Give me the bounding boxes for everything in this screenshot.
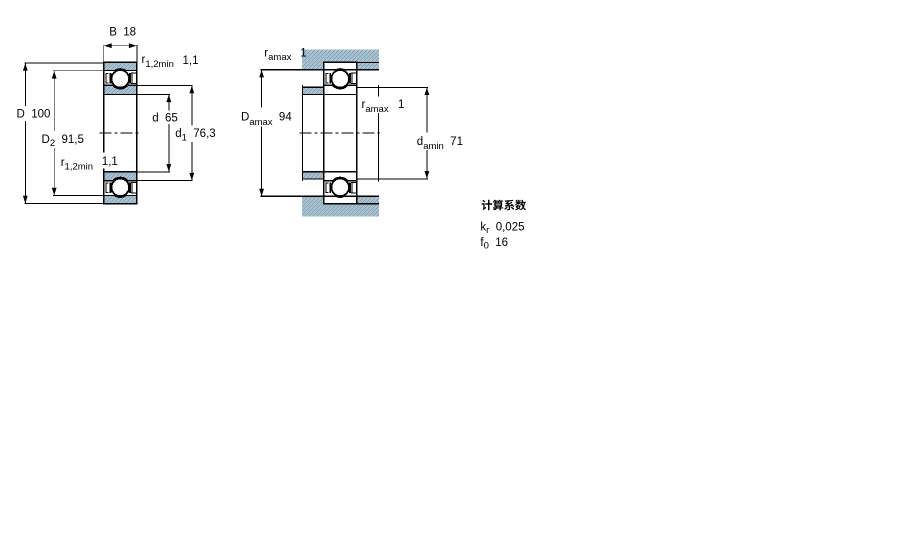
svg-text:1,1: 1,1 xyxy=(183,55,199,67)
svg-text:f0 16: f0 16 xyxy=(480,237,508,251)
svg-text:r1,2min: r1,2min xyxy=(142,54,174,70)
svg-text:kr 0,025: kr 0,025 xyxy=(480,221,524,235)
svg-text:ramax: ramax xyxy=(264,47,291,63)
svg-text:damin 71: damin 71 xyxy=(417,136,463,152)
svg-text:Damax 94: Damax 94 xyxy=(241,112,292,128)
svg-text:D 100: D 100 xyxy=(17,109,51,121)
svg-text:1: 1 xyxy=(300,47,306,59)
svg-text:r1,2min: r1,2min xyxy=(61,157,93,173)
svg-text:d 65: d 65 xyxy=(152,113,178,125)
svg-text:D2 91,5: D2 91,5 xyxy=(42,134,84,149)
svg-text:B 18: B 18 xyxy=(109,26,136,38)
svg-text:1,1: 1,1 xyxy=(102,156,118,168)
svg-text:d1 76,3: d1 76,3 xyxy=(175,128,215,143)
svg-text:ramax: ramax xyxy=(362,99,389,115)
svg-text:1: 1 xyxy=(398,99,404,111)
